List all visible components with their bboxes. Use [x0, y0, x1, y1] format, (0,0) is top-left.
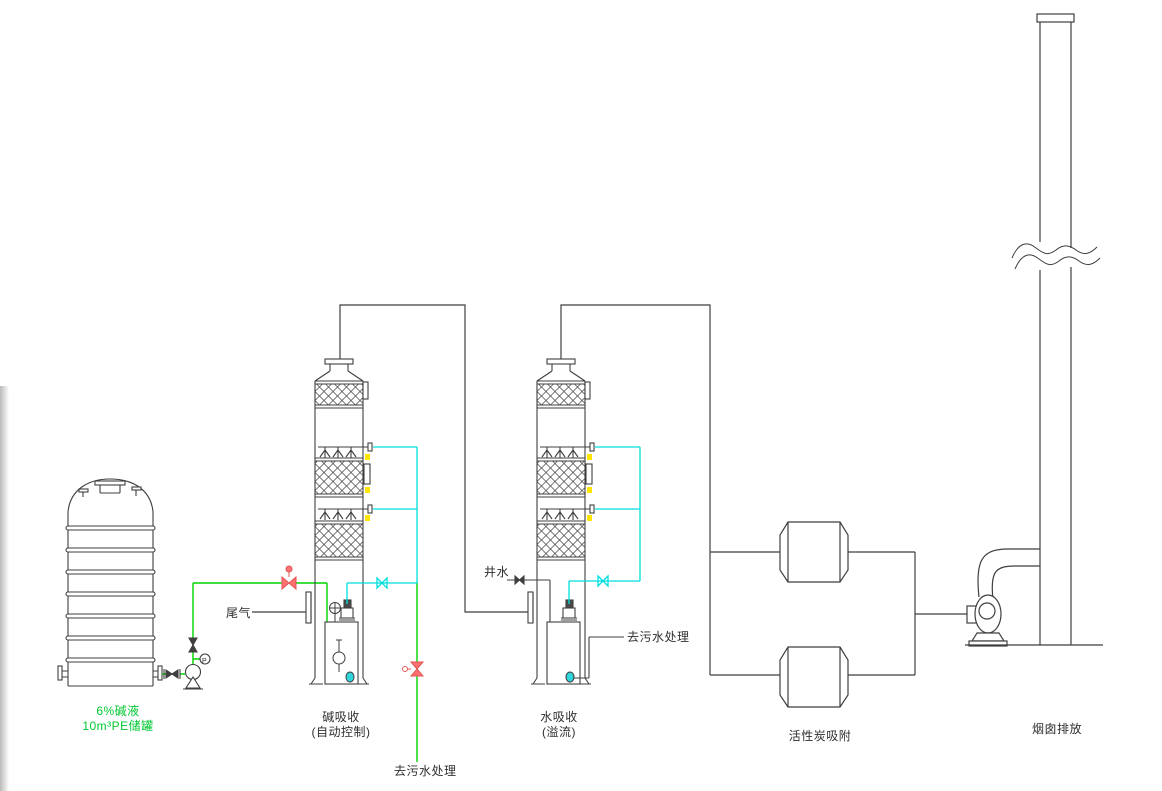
- tower1-name-label: 碱吸收: [303, 710, 379, 724]
- tower1-mode-label: (自动控制): [303, 725, 379, 739]
- storage-tank: [58, 479, 162, 686]
- fan: [967, 549, 1040, 646]
- tower2-water-scrubber: [528, 359, 594, 684]
- tower2-mode-label: (溢流): [523, 725, 595, 739]
- drain-pump-icon: [566, 672, 574, 682]
- tank-spec-line2: 10m³PE储罐: [62, 719, 174, 733]
- tower1-alkali-scrubber: [306, 359, 372, 684]
- stack-label: 烟囱排放: [1027, 722, 1087, 736]
- carbon-label: 活性炭吸附: [785, 729, 855, 743]
- tower1-drain-valve: [403, 662, 424, 676]
- pfd-canvas: 6%碱液 10m³PE储罐 尾气 碱吸收 (自动控制) 井水 水吸收 (溢流) …: [0, 0, 1162, 791]
- to-sewage-bottom-label: 去污水处理: [394, 764, 457, 778]
- sewage-leader: [574, 637, 624, 678]
- drain-pump-icon: [346, 672, 354, 682]
- tower2-name-label: 水吸收: [523, 710, 595, 724]
- pressure-gauge-tag: P: [202, 655, 207, 669]
- tank-spec-line1: 6%碱液: [62, 704, 174, 718]
- control-valve: [282, 566, 296, 589]
- chimney: [965, 14, 1103, 645]
- to-sewage-side-label: 去污水处理: [627, 630, 690, 644]
- pfd-drawing: [0, 0, 1162, 791]
- tail-gas-label: 尾气: [226, 606, 251, 620]
- page-edge-shadow: [0, 386, 9, 791]
- well-water-label: 井水: [484, 565, 509, 579]
- carbon-beds: [780, 522, 848, 707]
